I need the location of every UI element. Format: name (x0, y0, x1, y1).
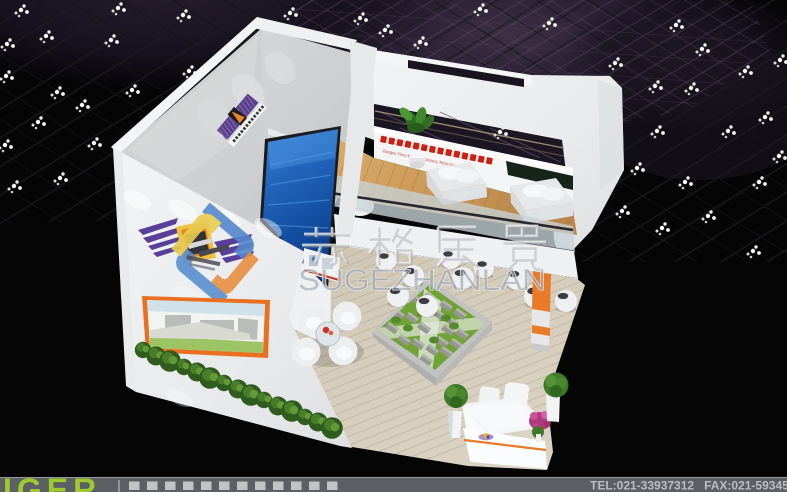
svg-text:TEL:021-33937312 FAX:021-593: TEL:021-33937312 FAX:021-59345 (590, 479, 787, 492)
svg-text:SUGEZHANLAN: SUGEZHANLAN (298, 264, 546, 297)
svg-text:IGER: IGER (3, 472, 101, 492)
